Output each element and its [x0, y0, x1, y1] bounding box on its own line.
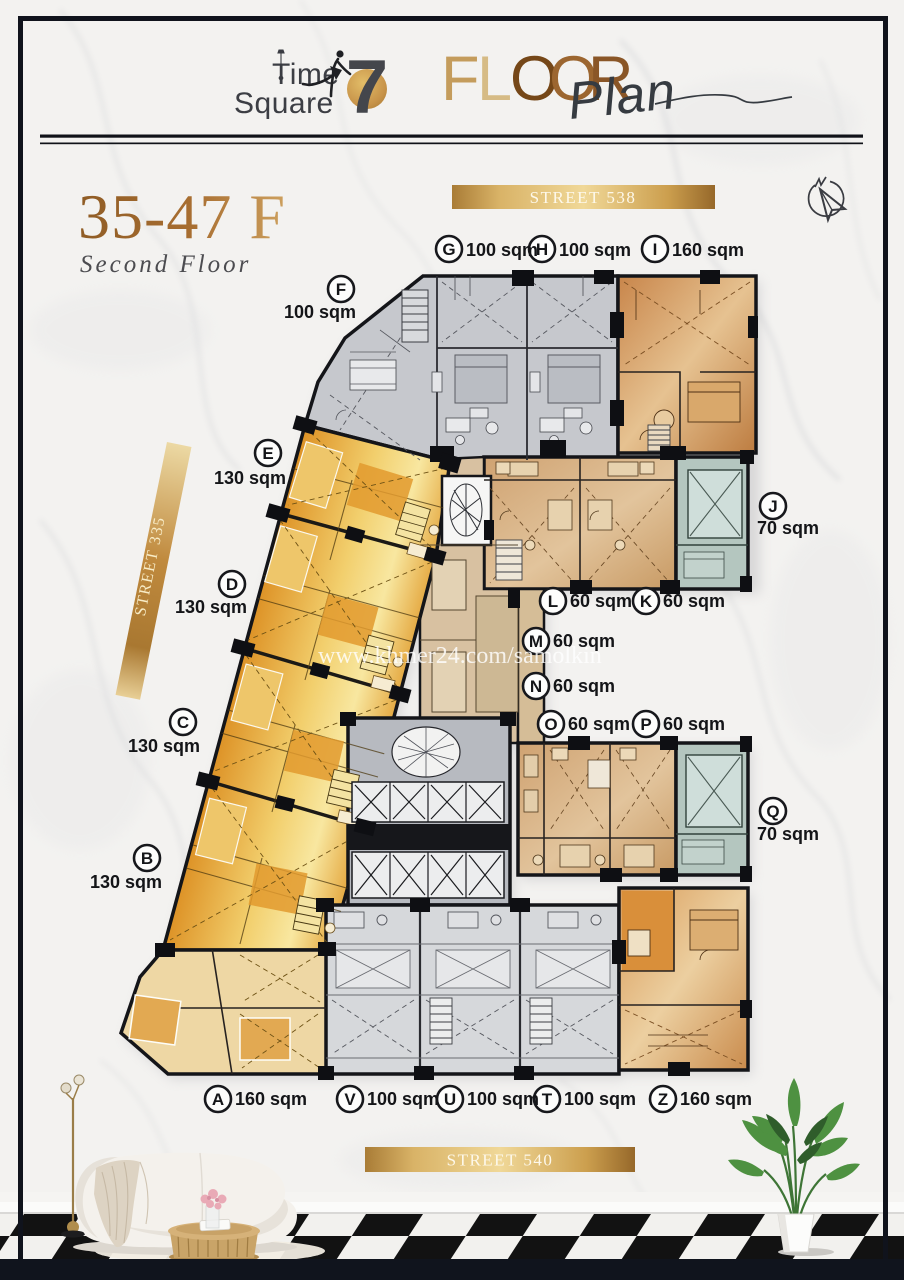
svg-text:60 sqm: 60 sqm [663, 591, 725, 611]
svg-text:A: A [212, 1090, 224, 1109]
svg-text:STREET 540: STREET 540 [447, 1151, 554, 1170]
svg-text:60 sqm: 60 sqm [568, 714, 630, 734]
svg-text:60 sqm: 60 sqm [663, 714, 725, 734]
svg-text:70 sqm: 70 sqm [757, 824, 819, 844]
svg-text:130 sqm: 130 sqm [175, 597, 247, 617]
svg-text:G: G [442, 240, 455, 259]
svg-text:L: L [477, 44, 512, 114]
svg-text:T: T [542, 1090, 553, 1109]
svg-text:V: V [344, 1090, 356, 1109]
svg-text:Plan: Plan [565, 62, 679, 131]
svg-text:130 sqm: 130 sqm [128, 736, 200, 756]
svg-text:www.khmer24.com/samolkin: www.khmer24.com/samolkin [318, 643, 602, 669]
svg-text:60 sqm: 60 sqm [553, 676, 615, 696]
svg-text:Q: Q [766, 802, 779, 821]
svg-text:Square: Square [234, 87, 334, 120]
svg-text:100 sqm: 100 sqm [284, 302, 356, 322]
svg-text:100 sqm: 100 sqm [467, 1089, 539, 1109]
svg-text:Z: Z [658, 1090, 668, 1109]
svg-text:130 sqm: 130 sqm [90, 872, 162, 892]
svg-text:100 sqm: 100 sqm [559, 240, 631, 260]
svg-text:B: B [141, 849, 153, 868]
svg-text:F: F [336, 280, 346, 299]
svg-text:7: 7 [346, 45, 388, 130]
svg-text:60 sqm: 60 sqm [570, 591, 632, 611]
svg-text:J: J [768, 497, 777, 516]
svg-text:160 sqm: 160 sqm [680, 1089, 752, 1109]
svg-text:O: O [544, 715, 557, 734]
svg-text:130 sqm: 130 sqm [214, 468, 286, 488]
svg-text:N: N [530, 677, 542, 696]
svg-text:E: E [262, 444, 273, 463]
svg-text:160 sqm: 160 sqm [235, 1089, 307, 1109]
svg-text:100 sqm: 100 sqm [564, 1089, 636, 1109]
svg-text:70 sqm: 70 sqm [757, 518, 819, 538]
svg-text:160 sqm: 160 sqm [672, 240, 744, 260]
svg-text:F: F [441, 44, 479, 114]
svg-text:C: C [177, 713, 189, 732]
svg-text:STREET 538: STREET 538 [530, 188, 637, 207]
svg-text:D: D [226, 575, 238, 594]
svg-text:I: I [653, 240, 658, 259]
svg-text:35-47 F: 35-47 F [78, 181, 286, 252]
svg-text:P: P [640, 715, 651, 734]
svg-text:L: L [548, 592, 558, 611]
svg-text:Second Floor: Second Floor [80, 251, 251, 278]
svg-text:K: K [640, 592, 653, 611]
svg-text:U: U [444, 1090, 456, 1109]
svg-text:100 sqm: 100 sqm [466, 240, 538, 260]
svg-text:100 sqm: 100 sqm [367, 1089, 439, 1109]
